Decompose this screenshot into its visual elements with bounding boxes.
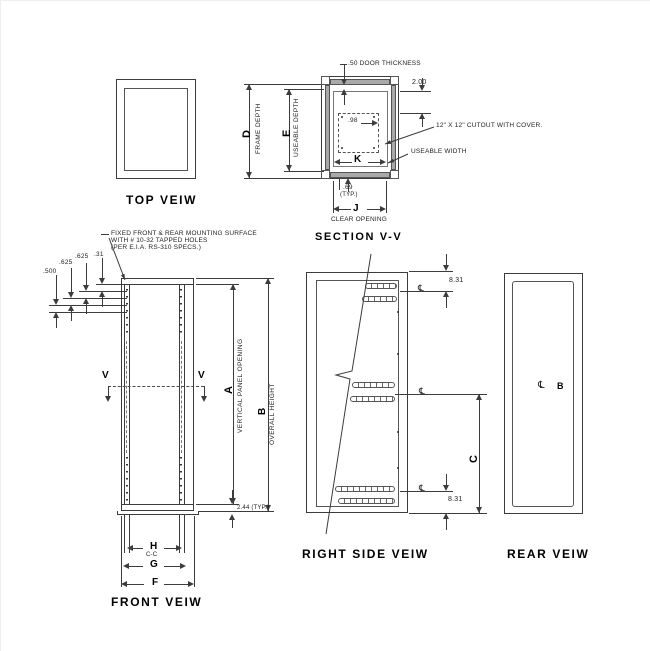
leader-lines [1, 1, 650, 651]
engineering-drawing-cabinet: TOP VEIW D FRAME DEPTH E USEABLE DEPTH [0, 0, 650, 651]
break-line [326, 254, 371, 534]
